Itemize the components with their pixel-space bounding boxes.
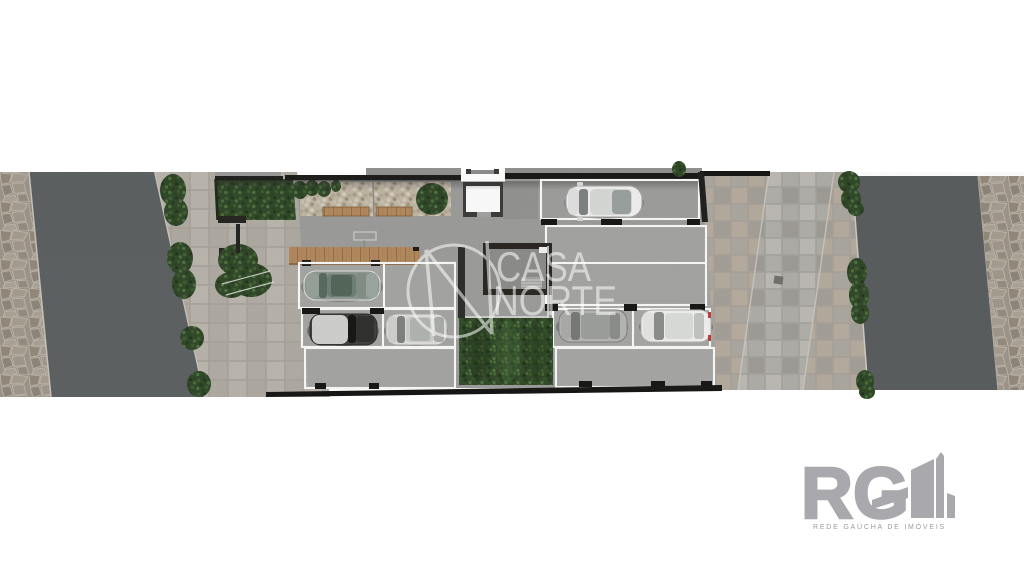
svg-text:NORTE: NORTE xyxy=(493,277,617,324)
svg-text:REDE GAÚCHA DE IMÓVEIS: REDE GAÚCHA DE IMÓVEIS xyxy=(813,522,946,531)
